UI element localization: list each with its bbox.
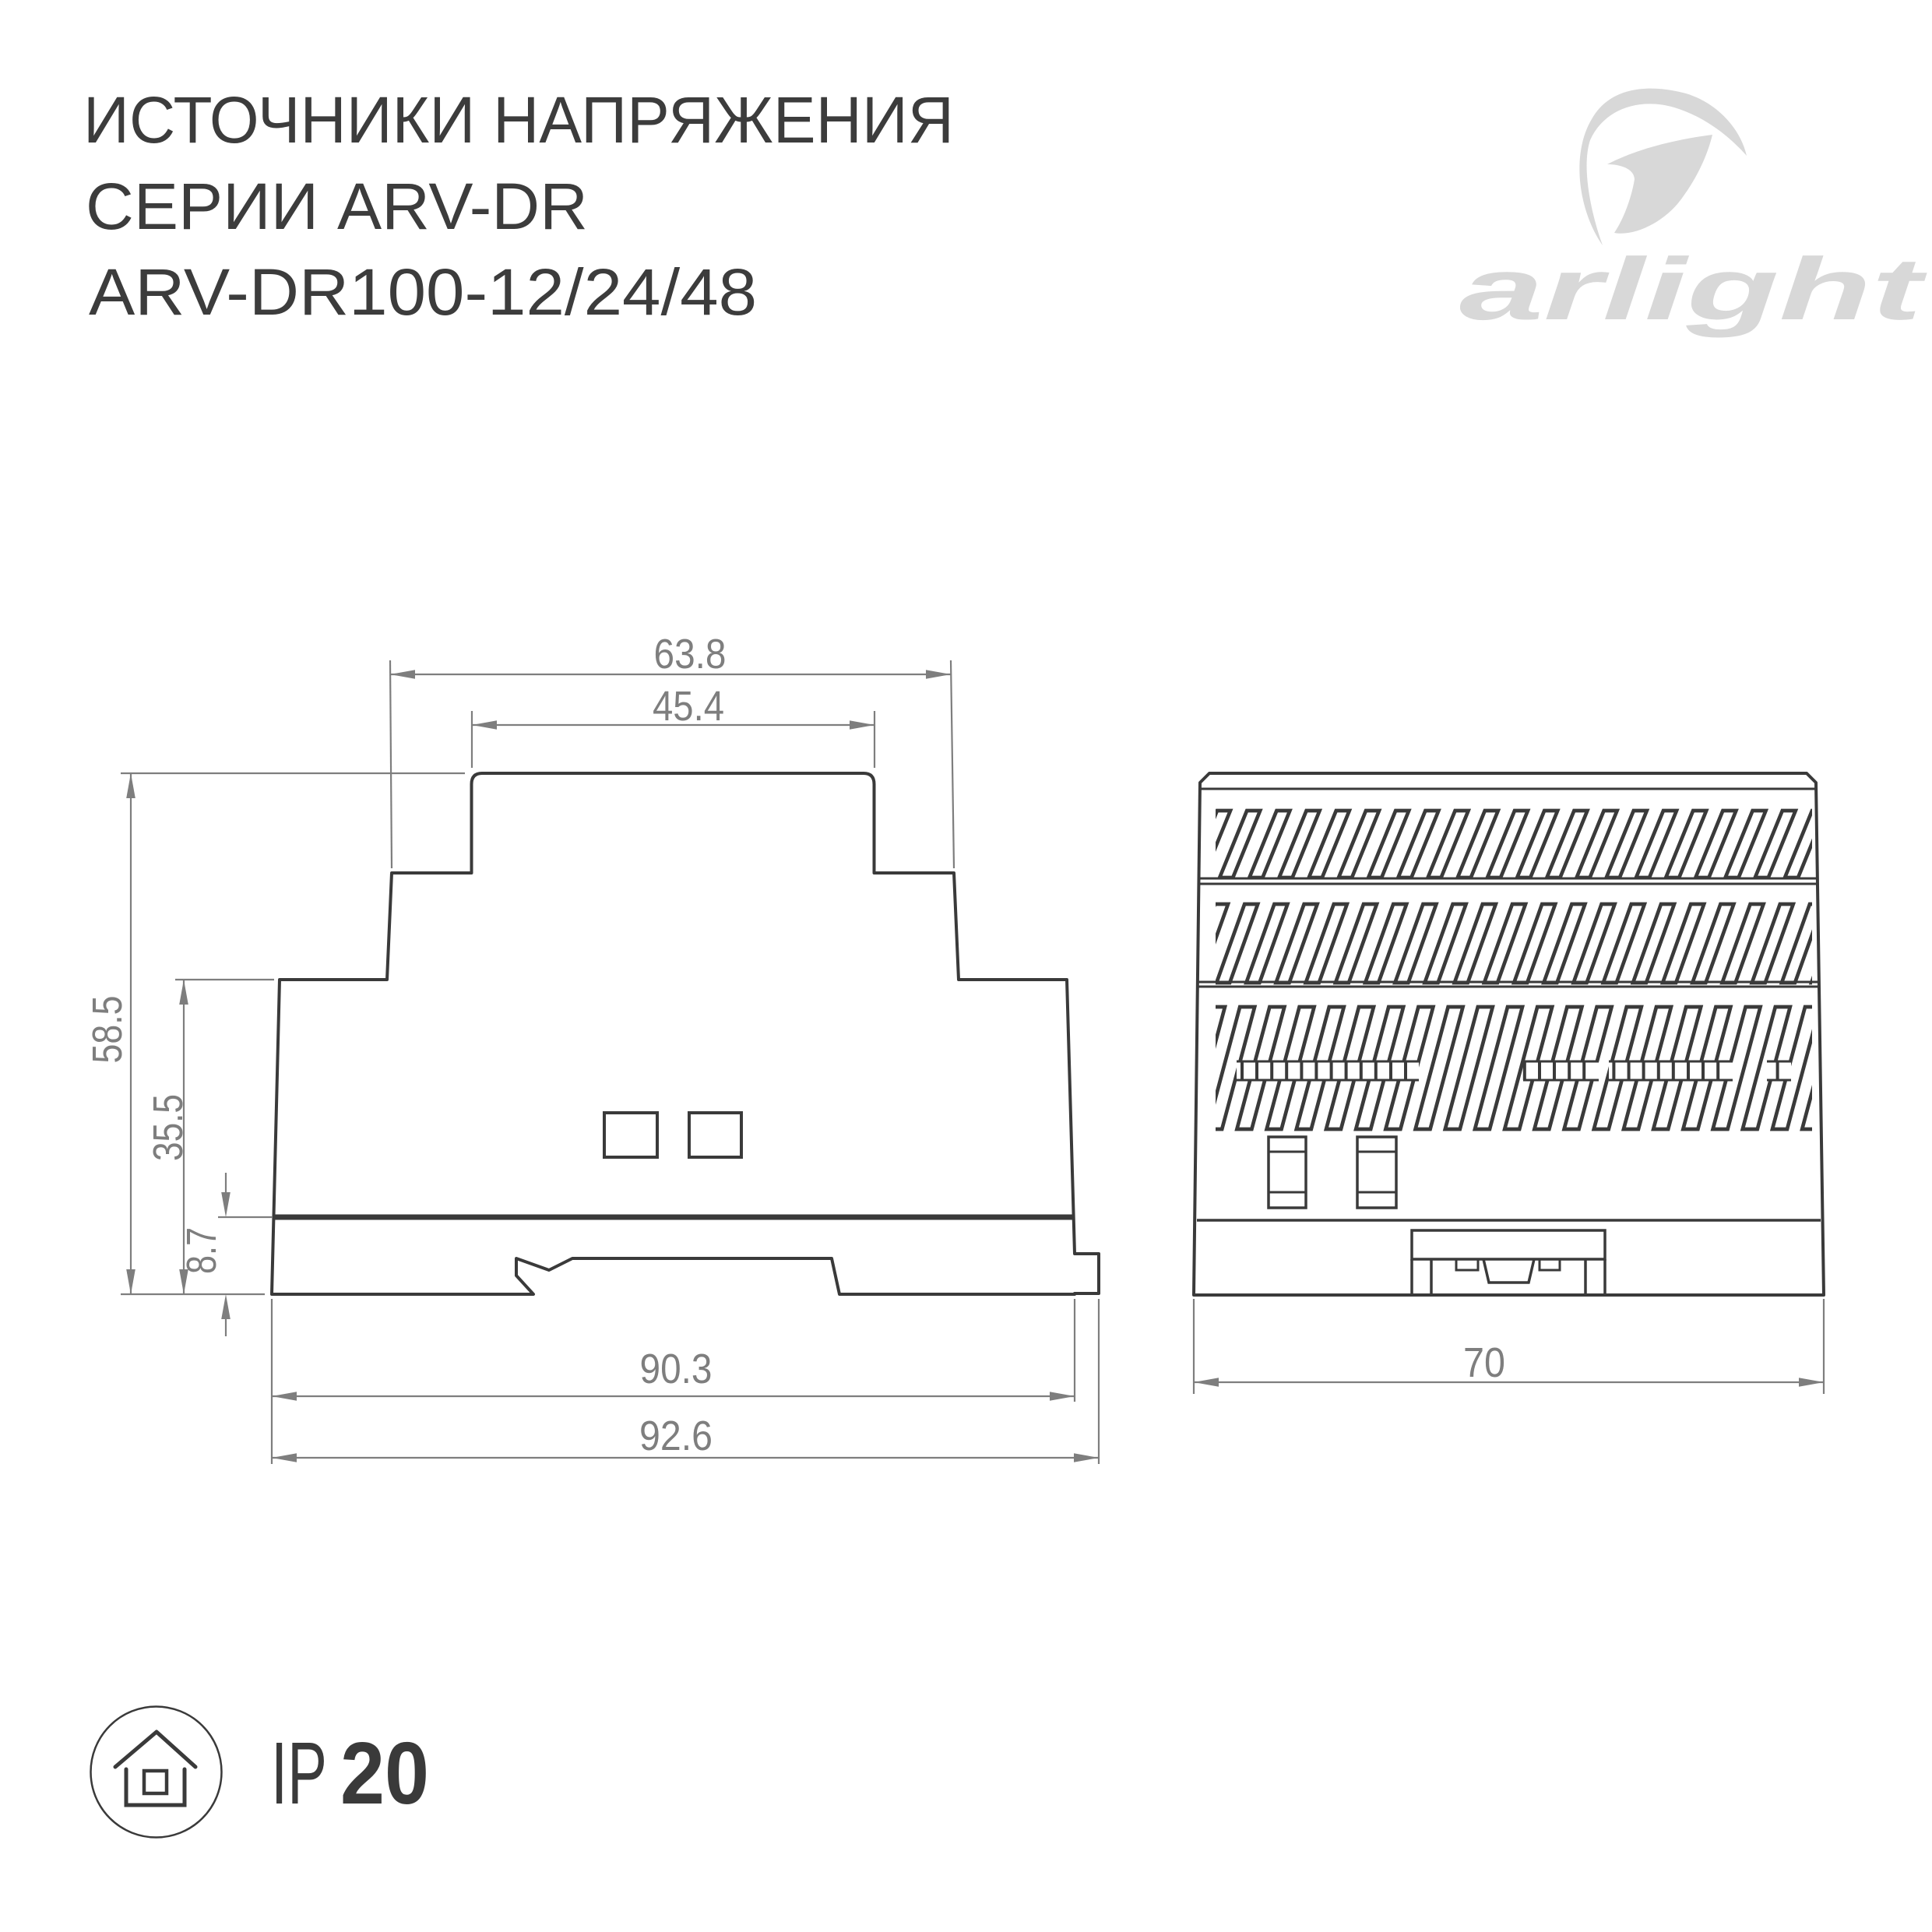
svg-text:35.5: 35.5	[145, 1094, 192, 1161]
svg-text:90.3: 90.3	[640, 1346, 713, 1392]
svg-text:8.7: 8.7	[178, 1227, 225, 1274]
svg-text:ARV-DR100-12/24/48: ARV-DR100-12/24/48	[89, 255, 757, 329]
svg-text:СЕРИИ ARV-DR: СЕРИИ ARV-DR	[86, 170, 588, 243]
svg-text:20: 20	[340, 1724, 429, 1822]
svg-text:arlight: arlight	[1459, 240, 1928, 338]
svg-text:70: 70	[1463, 1339, 1505, 1386]
svg-text:ИСТОЧНИКИ НАПРЯЖЕНИЯ: ИСТОЧНИКИ НАПРЯЖЕНИЯ	[83, 83, 954, 157]
svg-text:92.6: 92.6	[639, 1413, 713, 1459]
svg-text:63.8: 63.8	[654, 631, 727, 677]
svg-text:IP: IP	[271, 1724, 327, 1822]
svg-text:45.4: 45.4	[653, 683, 724, 730]
svg-text:58.5: 58.5	[84, 996, 131, 1064]
